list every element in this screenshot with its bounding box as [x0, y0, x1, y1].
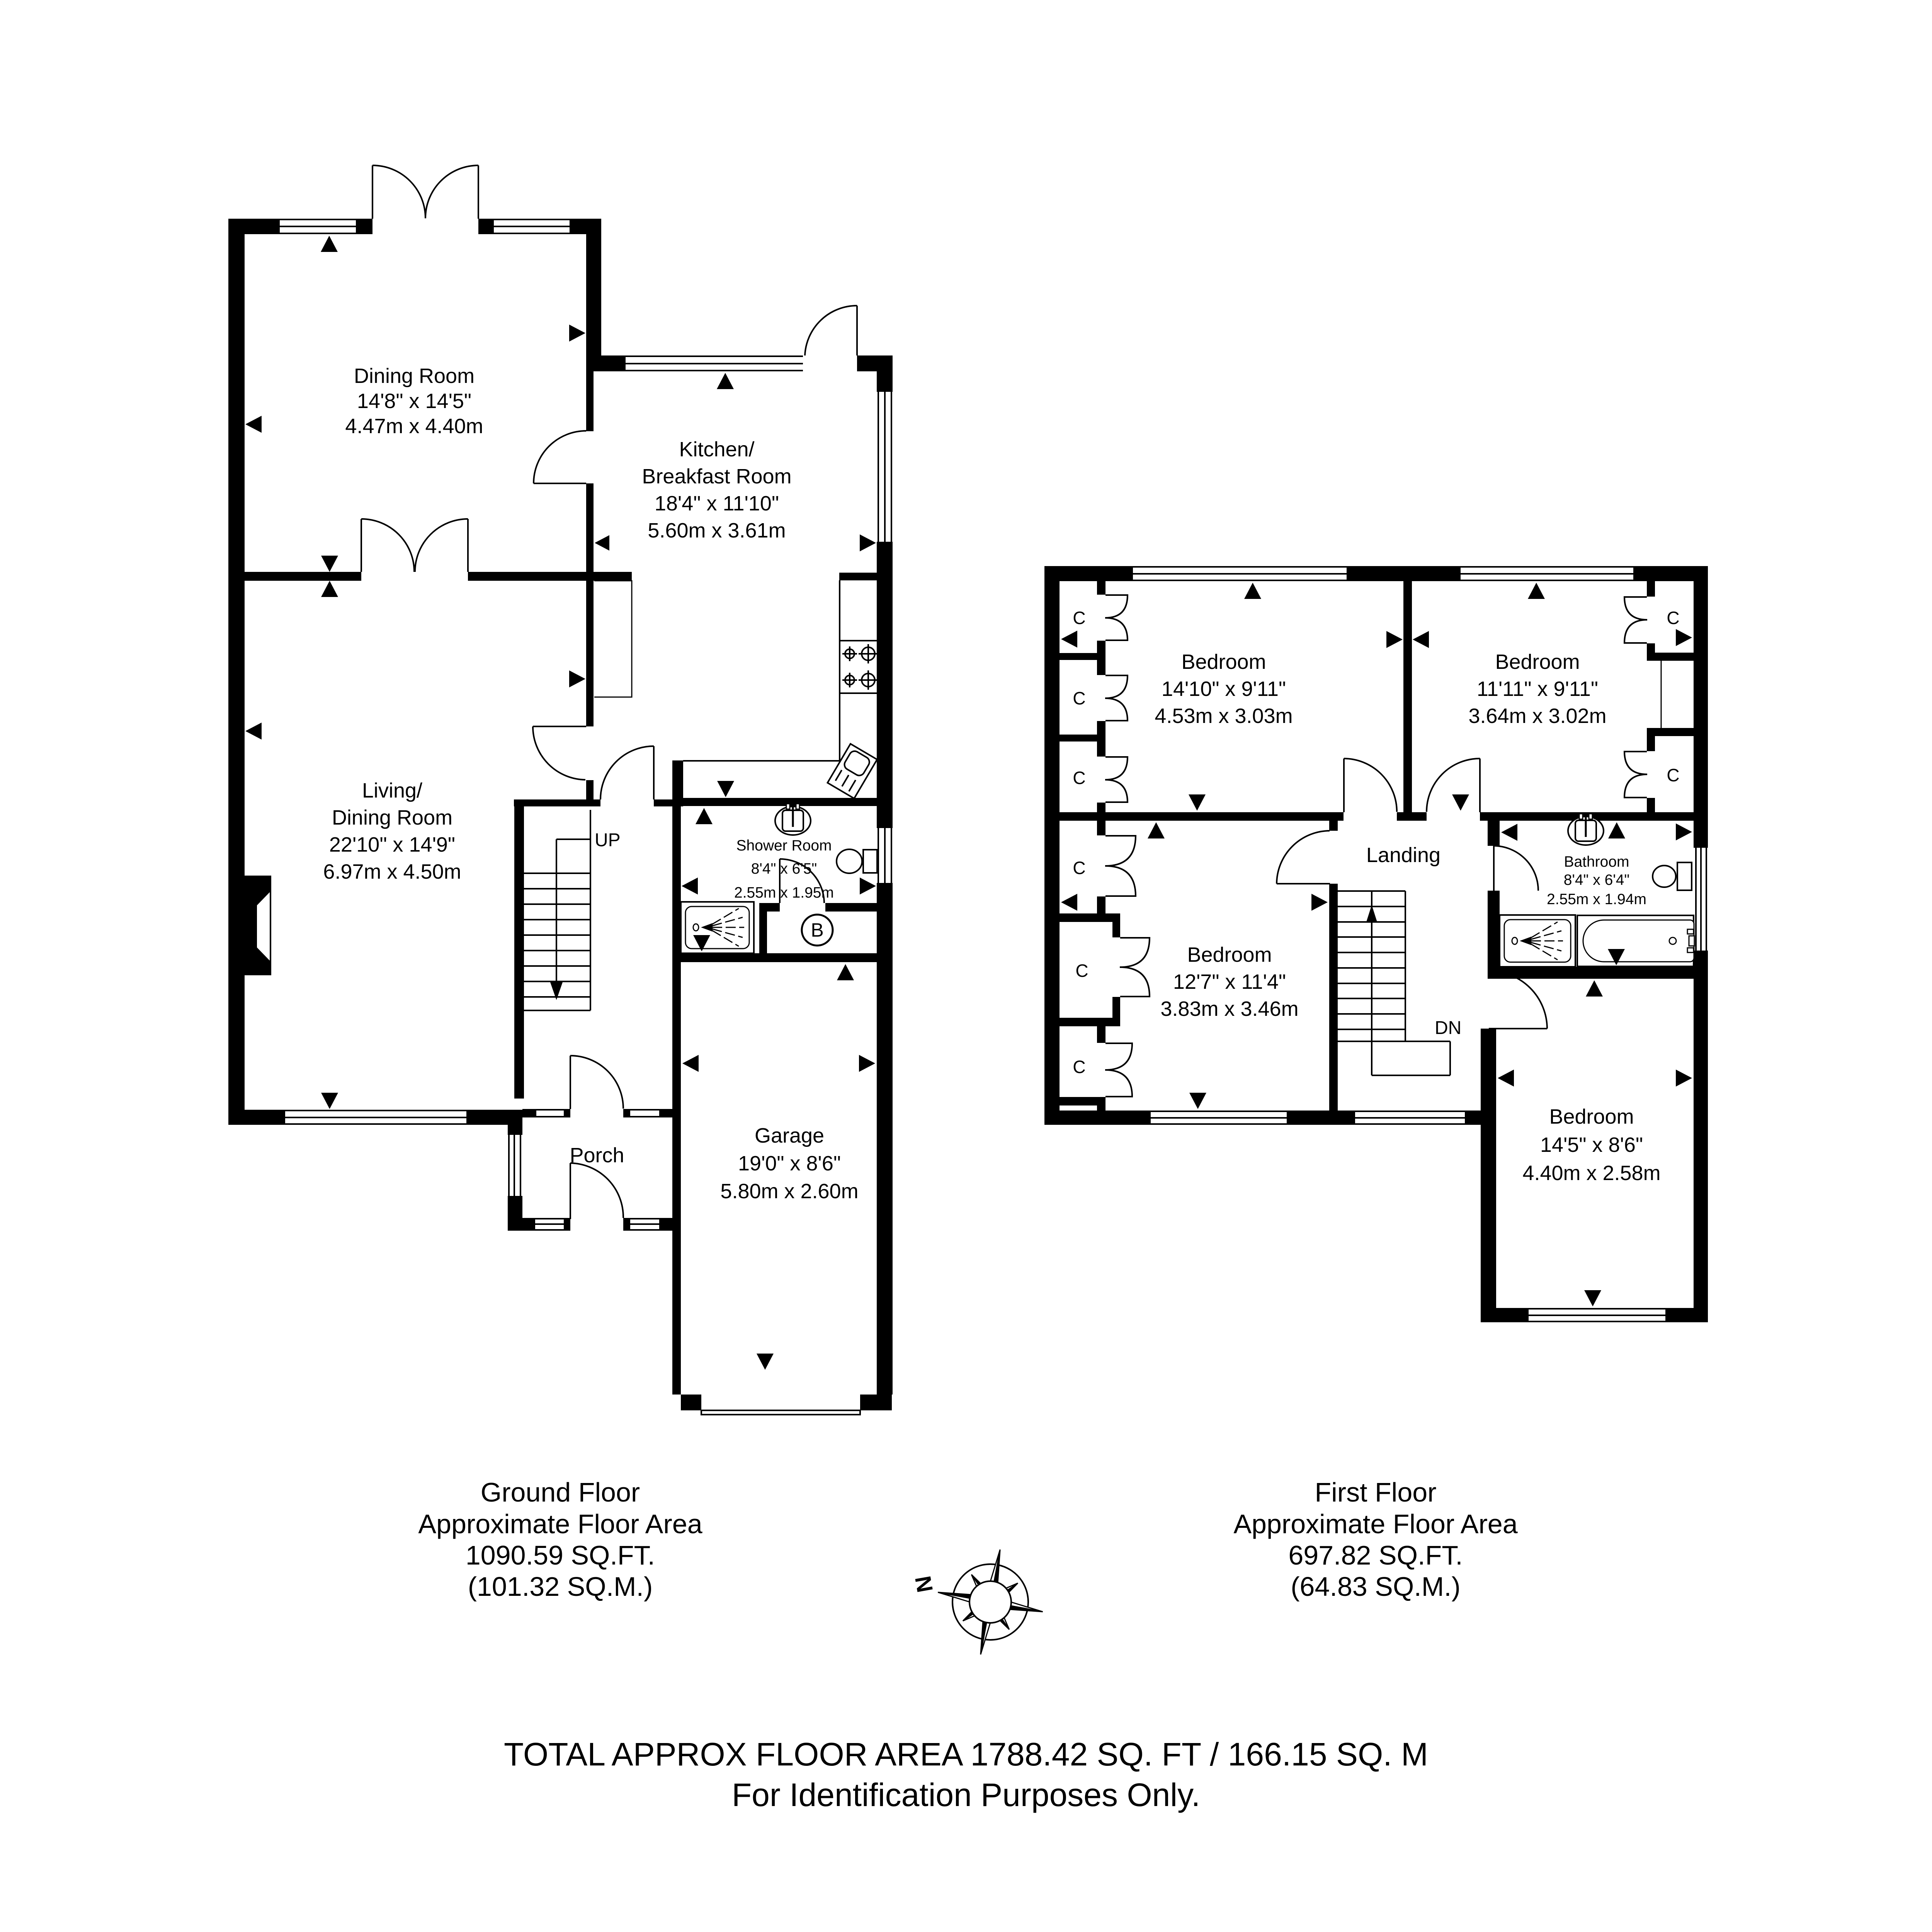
svg-text:C: C: [1073, 858, 1085, 878]
svg-text:11'11" x 9'11": 11'11" x 9'11": [1477, 677, 1598, 701]
svg-text:4.53m x 3.03m: 4.53m x 3.03m: [1155, 704, 1293, 728]
svg-text:First Floor: First Floor: [1315, 1477, 1437, 1507]
svg-text:Porch: Porch: [570, 1144, 624, 1167]
svg-text:5.80m x 2.60m: 5.80m x 2.60m: [720, 1180, 858, 1203]
svg-text:3.64m x 3.02m: 3.64m x 3.02m: [1468, 704, 1606, 728]
svg-text:Shower Room: Shower Room: [736, 837, 832, 854]
svg-text:Living/: Living/: [362, 779, 422, 802]
svg-text:C: C: [1075, 961, 1088, 981]
svg-text:Bedroom: Bedroom: [1187, 943, 1272, 966]
svg-text:(64.83 SQ.M.): (64.83 SQ.M.): [1291, 1571, 1461, 1602]
svg-text:C: C: [1667, 765, 1679, 785]
svg-text:14'8" x 14'5": 14'8" x 14'5": [357, 389, 471, 413]
svg-text:4.40m x 2.58m: 4.40m x 2.58m: [1522, 1162, 1660, 1185]
svg-text:6.97m x 4.50m: 6.97m x 4.50m: [323, 860, 461, 883]
svg-text:Bedroom: Bedroom: [1495, 650, 1580, 673]
svg-text:2.55m x 1.95m: 2.55m x 1.95m: [734, 884, 834, 901]
svg-text:14'10" x 9'11": 14'10" x 9'11": [1162, 677, 1286, 701]
svg-text:3.83m x 3.46m: 3.83m x 3.46m: [1160, 997, 1298, 1020]
svg-text:(101.32 SQ.M.): (101.32 SQ.M.): [468, 1571, 653, 1602]
svg-text:14'5" x 8'6": 14'5" x 8'6": [1540, 1133, 1643, 1156]
svg-text:4.47m x 4.40m: 4.47m x 4.40m: [345, 415, 483, 438]
svg-text:697.82 SQ.FT.: 697.82 SQ.FT.: [1288, 1540, 1463, 1570]
svg-text:Breakfast Room: Breakfast Room: [642, 465, 791, 488]
svg-text:C: C: [1073, 688, 1085, 708]
svg-text:8'4" x 6'5": 8'4" x 6'5": [751, 861, 817, 877]
svg-text:Bathroom: Bathroom: [1564, 854, 1629, 870]
svg-text:UP: UP: [595, 830, 621, 850]
svg-text:C: C: [1073, 1057, 1085, 1077]
svg-text:Ground Floor: Ground Floor: [481, 1477, 640, 1507]
svg-text:C: C: [1667, 608, 1679, 628]
svg-text:Bedroom: Bedroom: [1181, 650, 1266, 673]
svg-text:TOTAL APPROX FLOOR AREA 1788.4: TOTAL APPROX FLOOR AREA 1788.42 SQ. FT /…: [504, 1736, 1428, 1772]
svg-text:Bedroom: Bedroom: [1549, 1105, 1634, 1128]
svg-text:2.55m x 1.94m: 2.55m x 1.94m: [1547, 891, 1646, 908]
svg-text:18'4" x 11'10": 18'4" x 11'10": [655, 492, 779, 515]
svg-text:Garage: Garage: [755, 1124, 824, 1147]
svg-text:Dining Room: Dining Room: [332, 806, 452, 829]
svg-text:For Identification Purposes On: For Identification Purposes Only.: [732, 1777, 1200, 1813]
svg-text:Dining Room: Dining Room: [354, 364, 474, 388]
svg-text:19'0" x 8'6": 19'0" x 8'6": [738, 1152, 841, 1175]
svg-text:22'10" x 14'9": 22'10" x 14'9": [329, 833, 455, 856]
svg-text:B: B: [811, 919, 823, 941]
svg-text:C: C: [1073, 768, 1085, 788]
svg-text:C: C: [1073, 608, 1085, 628]
svg-text:Landing: Landing: [1366, 844, 1440, 867]
svg-text:1090.59 SQ.FT.: 1090.59 SQ.FT.: [466, 1540, 655, 1570]
svg-text:12'7" x 11'4": 12'7" x 11'4": [1173, 970, 1286, 993]
svg-text:Approximate Floor Area: Approximate Floor Area: [418, 1509, 702, 1539]
svg-text:Approximate Floor Area: Approximate Floor Area: [1233, 1509, 1517, 1539]
svg-text:5.60m x 3.61m: 5.60m x 3.61m: [648, 519, 786, 542]
svg-text:8'4" x 6'4": 8'4" x 6'4": [1564, 872, 1630, 888]
svg-text:DN: DN: [1435, 1018, 1461, 1038]
svg-text:Kitchen/: Kitchen/: [679, 438, 754, 461]
